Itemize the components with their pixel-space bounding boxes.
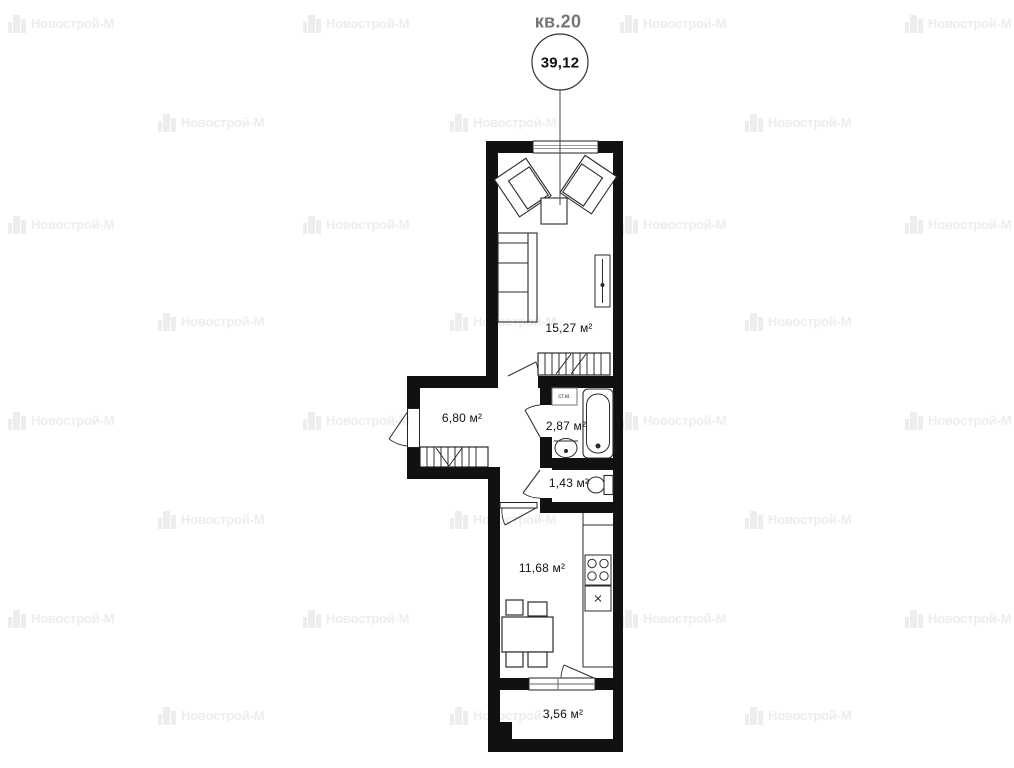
- total-area-value: 39,12: [541, 55, 580, 72]
- tv-icon: [595, 255, 610, 307]
- door-entrance: [389, 409, 420, 448]
- washing-machine-label: ст.м.: [558, 394, 571, 400]
- floor-plan: [0, 0, 1014, 768]
- coffee-table-icon: [541, 198, 567, 224]
- door-openings: [407, 376, 552, 498]
- living-room-window-icon: [533, 141, 598, 153]
- balcony-window-door-icon: [529, 678, 595, 690]
- armchair-right-icon: [560, 155, 617, 214]
- door-bathroom: [525, 405, 540, 437]
- sofa-icon: [498, 233, 537, 322]
- bathtub-icon: [583, 389, 613, 458]
- room-area-living-room: 15,27 м²: [545, 321, 592, 335]
- bathroom-sink-icon: [554, 439, 578, 458]
- room-area-bathroom: 2,87 м²: [546, 419, 586, 433]
- dining-table-icon: [502, 600, 553, 667]
- door-wc: [523, 470, 540, 498]
- kitchen-sink-icon: [585, 586, 611, 611]
- apartment-number-label: кв.20: [535, 12, 582, 33]
- room-area-wc: 1,43 м²: [549, 476, 589, 490]
- stove-icon: [585, 555, 611, 585]
- wardrobe-living-room-icon: [538, 353, 610, 375]
- wardrobe-hallway-icon: [420, 447, 488, 467]
- toilet-icon: [588, 476, 614, 495]
- floor-plan-page: кв.20 39,12 15,27 м² 6,80 м² 2,87 м² 1,4…: [0, 0, 1014, 768]
- room-area-balcony: 3,56 м²: [543, 707, 583, 721]
- door-kitchen: [500, 503, 537, 526]
- door-living-room: [508, 362, 538, 376]
- room-area-kitchen: 11,68 м²: [519, 561, 565, 575]
- room-area-hallway: 6,80 м²: [442, 411, 482, 425]
